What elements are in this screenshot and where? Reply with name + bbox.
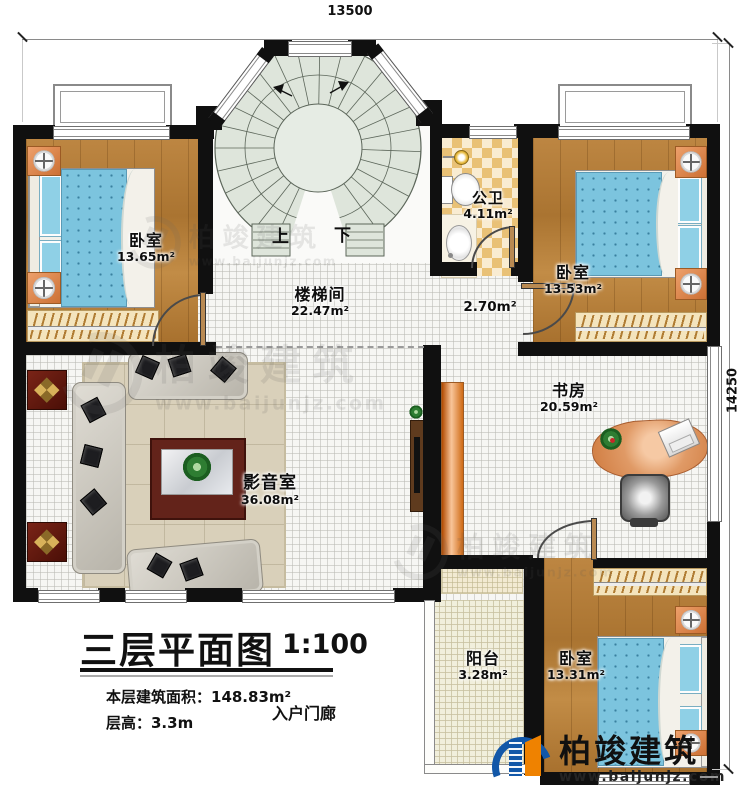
brand-logo-icon [492, 731, 550, 789]
bed [575, 170, 709, 278]
nightstand-lamp [27, 146, 61, 176]
room-label-bathroom: 公卫 4.11m² [452, 190, 524, 221]
floor-plan-canvas: 13500 14250 [0, 0, 750, 801]
window [125, 590, 187, 603]
plant-flower [610, 438, 615, 443]
watermark-logo-icon [383, 515, 458, 590]
window [469, 126, 517, 139]
watermark: 柏竣建筑 www.baijunjz.com [60, 332, 387, 415]
extension-line [717, 40, 718, 122]
shower-head-icon [454, 150, 469, 165]
nightstand-lamp [27, 272, 61, 304]
wall-segment [13, 125, 26, 602]
wall-segment [13, 125, 55, 139]
brand-logo: 柏竣建筑 www.baijunjz.com [492, 731, 726, 789]
nightstand-lamp [675, 606, 707, 634]
monitor-stand [630, 518, 658, 527]
wall-segment [430, 124, 442, 276]
room-label-study: 书房 20.59m² [524, 382, 614, 414]
title-underline [80, 668, 333, 672]
tv [414, 437, 420, 493]
plant [180, 450, 214, 484]
wall-segment [430, 262, 477, 276]
brand-name: 柏竣建筑 [559, 735, 726, 769]
watermark: 柏竣建筑 www.baijunjz.com [128, 216, 337, 269]
watermark-logo-icon [46, 318, 156, 428]
wall-segment [13, 588, 38, 602]
balcony-parapet [424, 600, 435, 774]
window [558, 126, 690, 140]
bay-window [53, 84, 172, 130]
room-label-media-room: 影音室 36.08m² [215, 474, 325, 507]
floor-area-text: 本层建筑面积：148.83m² [106, 686, 291, 707]
monitor [620, 474, 670, 522]
wall-segment [185, 588, 242, 602]
window [38, 590, 100, 603]
window [288, 41, 352, 57]
nightstand-lamp [675, 146, 707, 178]
wardrobe [575, 312, 707, 342]
window [53, 126, 170, 140]
extension-line [22, 40, 23, 122]
room-label-hallway: 2.70m² [452, 300, 528, 315]
title-underline-thin [80, 675, 333, 677]
plant [408, 404, 424, 420]
bay-window [558, 84, 692, 130]
room-label-stairwell: 楼梯间 22.47m² [272, 286, 368, 318]
nightstand-lamp [675, 268, 707, 300]
porch-label: 入户门廊 [272, 700, 336, 724]
plan-scale: 1:100 [282, 629, 368, 660]
watermark: 柏竣建筑 www.baijunjz.com [392, 524, 614, 580]
door-leaf [509, 226, 515, 268]
window [242, 590, 395, 603]
window [707, 346, 722, 522]
watermark-logo-icon [119, 207, 189, 277]
room-label-bedroom-top-right: 卧室 13.53m² [525, 264, 621, 296]
dimension-right: 14250 [726, 361, 741, 421]
wall-segment [98, 588, 125, 602]
logo-dash [700, 776, 718, 778]
floor-height-text: 层高：3.3m [106, 712, 193, 733]
room-label-balcony: 阳台 3.28m² [443, 650, 523, 682]
plan-title: 三层平面图 [80, 620, 275, 674]
wall-segment [518, 342, 720, 356]
dimension-top: 13500 [315, 4, 385, 19]
dimension-line-top [22, 39, 718, 40]
end-table [27, 522, 67, 562]
room-label-bedroom-bottom-right: 卧室 13.31m² [528, 650, 624, 682]
